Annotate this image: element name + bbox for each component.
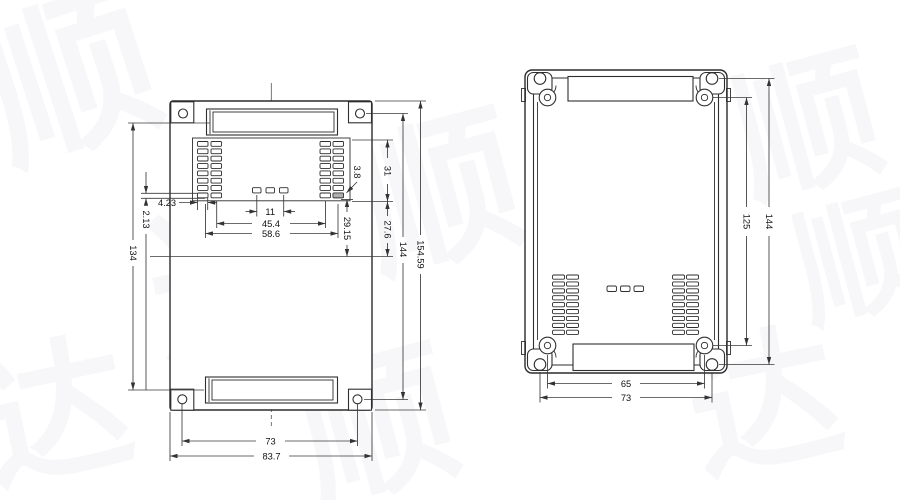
dim-label-65: 65 [621, 379, 631, 389]
corner-hole [534, 359, 546, 371]
dim-label-73-left: 73 [265, 436, 275, 446]
mounting-hole [356, 109, 365, 118]
highlighted-slot [333, 193, 344, 198]
dim-label-31: 31 [382, 166, 392, 176]
dim-label-144-right: 144 [764, 214, 774, 230]
dim-label-144-left: 144 [398, 242, 408, 258]
dim-label-58-6: 58.6 [262, 229, 280, 239]
dim-label-83-7: 83.7 [262, 451, 280, 461]
dim-label-2-13: 2.13 [141, 210, 151, 228]
corner-hole [706, 73, 718, 85]
corner-hole [706, 359, 718, 371]
mounting-hole [178, 395, 187, 404]
dim-label-29-15: 29.15 [342, 217, 352, 240]
left-bottom-slot [206, 377, 338, 403]
dim-label-11: 11 [265, 207, 275, 217]
dim-label-45-4: 45.4 [262, 219, 280, 229]
right-inner-wall [534, 78, 719, 365]
right-bottom-slot [573, 344, 694, 371]
dim-label-154-59: 154.59 [415, 240, 425, 268]
dim-label-73-right: 73 [621, 393, 631, 403]
dim-label-125: 125 [741, 214, 751, 230]
right-middle-slots [607, 286, 644, 292]
right-top-slot [568, 77, 693, 102]
left-view: 134 2.13 4.23 11 [128, 83, 426, 461]
drawing-canvas: 顺 达 顺 达 顺 达 顺 达 顺 [0, 0, 900, 500]
mounting-hole [353, 395, 362, 404]
left-top-slot [207, 109, 338, 135]
technical-drawing: 134 2.13 4.23 11 [0, 0, 900, 500]
corner-hole [534, 73, 546, 85]
mounting-hole [179, 109, 188, 118]
dim-label-27-6: 27.6 [382, 220, 392, 238]
left-outer-outline [170, 101, 372, 410]
dim-label-4-23: 4.23 [158, 198, 176, 208]
dim-label-3-8: 3.8 [352, 166, 362, 179]
left-middle-slots [253, 188, 289, 193]
right-view: 125 144 65 73 [522, 70, 775, 403]
dim-label-134: 134 [128, 245, 138, 261]
